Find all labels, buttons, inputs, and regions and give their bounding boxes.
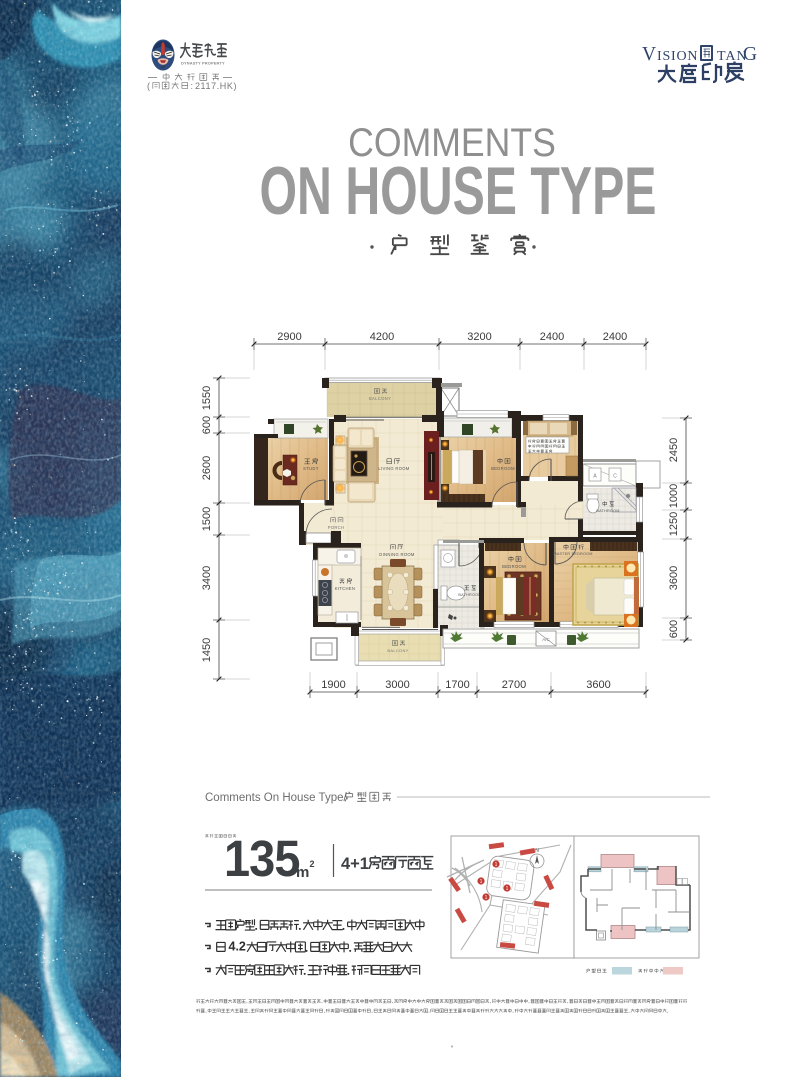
svg-text:3400: 3400 [201, 566, 213, 590]
svg-text:1550: 1550 [201, 386, 213, 410]
svg-text:DINNING ROOM: DINNING ROOM [379, 552, 415, 557]
svg-text:1: 1 [506, 886, 509, 892]
svg-text:BALCONY: BALCONY [369, 396, 391, 401]
svg-text:3000: 3000 [385, 679, 409, 691]
svg-text:1900: 1900 [321, 679, 345, 691]
svg-text:1500: 1500 [201, 507, 213, 531]
svg-text:2450: 2450 [668, 438, 680, 462]
svg-text:(: ( [147, 81, 150, 91]
svg-text:V: V [642, 44, 656, 65]
svg-text:1250: 1250 [668, 512, 680, 536]
svg-text:STUDY: STUDY [303, 466, 319, 471]
svg-text:2400: 2400 [603, 331, 627, 343]
svg-text:*: * [451, 1045, 454, 1052]
svg-text:ON HOUSE TYPE: ON HOUSE TYPE [259, 154, 656, 229]
svg-text:2600: 2600 [201, 456, 213, 480]
svg-text:ISION: ISION [657, 49, 698, 64]
svg-text:DYNASTY PROPERTY: DYNASTY PROPERTY [181, 60, 225, 65]
svg-text:4+1: 4+1 [341, 855, 369, 873]
svg-text:135: 135 [224, 831, 300, 887]
svg-text:1450: 1450 [201, 638, 213, 662]
svg-text:1700: 1700 [445, 679, 469, 691]
svg-text:3600: 3600 [586, 679, 610, 691]
svg-text:: 2117.HK): : 2117.HK) [191, 81, 238, 91]
svg-text:Comments On House Type/: Comments On House Type/ [205, 792, 347, 804]
svg-text:LIVING ROOM: LIVING ROOM [378, 466, 409, 471]
svg-text:BEDROOM: BEDROOM [491, 466, 515, 471]
svg-text:PORCH: PORCH [328, 525, 345, 530]
svg-text:2700: 2700 [502, 679, 526, 691]
svg-text:G: G [743, 44, 757, 65]
svg-text:KITCHEN: KITCHEN [335, 586, 355, 591]
svg-text:2900: 2900 [277, 331, 301, 343]
svg-text:BALCONY: BALCONY [387, 648, 408, 653]
svg-text:1: 1 [485, 895, 488, 901]
svg-text:1: 1 [480, 879, 483, 885]
svg-text:C: C [613, 474, 617, 480]
svg-text:BATHROOM: BATHROOM [458, 593, 481, 597]
svg-text:600: 600 [201, 416, 213, 434]
svg-text:BEDROOM: BEDROOM [502, 564, 526, 569]
svg-text:2400: 2400 [540, 331, 564, 343]
svg-text:1000: 1000 [668, 484, 680, 508]
svg-text:600: 600 [668, 620, 680, 638]
svg-text:2: 2 [310, 859, 315, 869]
svg-text:3200: 3200 [467, 331, 491, 343]
svg-text:A/C: A/C [542, 637, 550, 642]
svg-text:BATHROOM: BATHROOM [596, 509, 619, 513]
svg-text:4200: 4200 [370, 331, 394, 343]
svg-text:N: N [535, 848, 539, 854]
svg-text:4.2: 4.2 [229, 940, 246, 954]
svg-text:3600: 3600 [668, 566, 680, 590]
svg-text:MASTER BEDROOM: MASTER BEDROOM [553, 552, 592, 556]
svg-text:1: 1 [495, 862, 498, 868]
svg-text:m: m [296, 864, 309, 881]
